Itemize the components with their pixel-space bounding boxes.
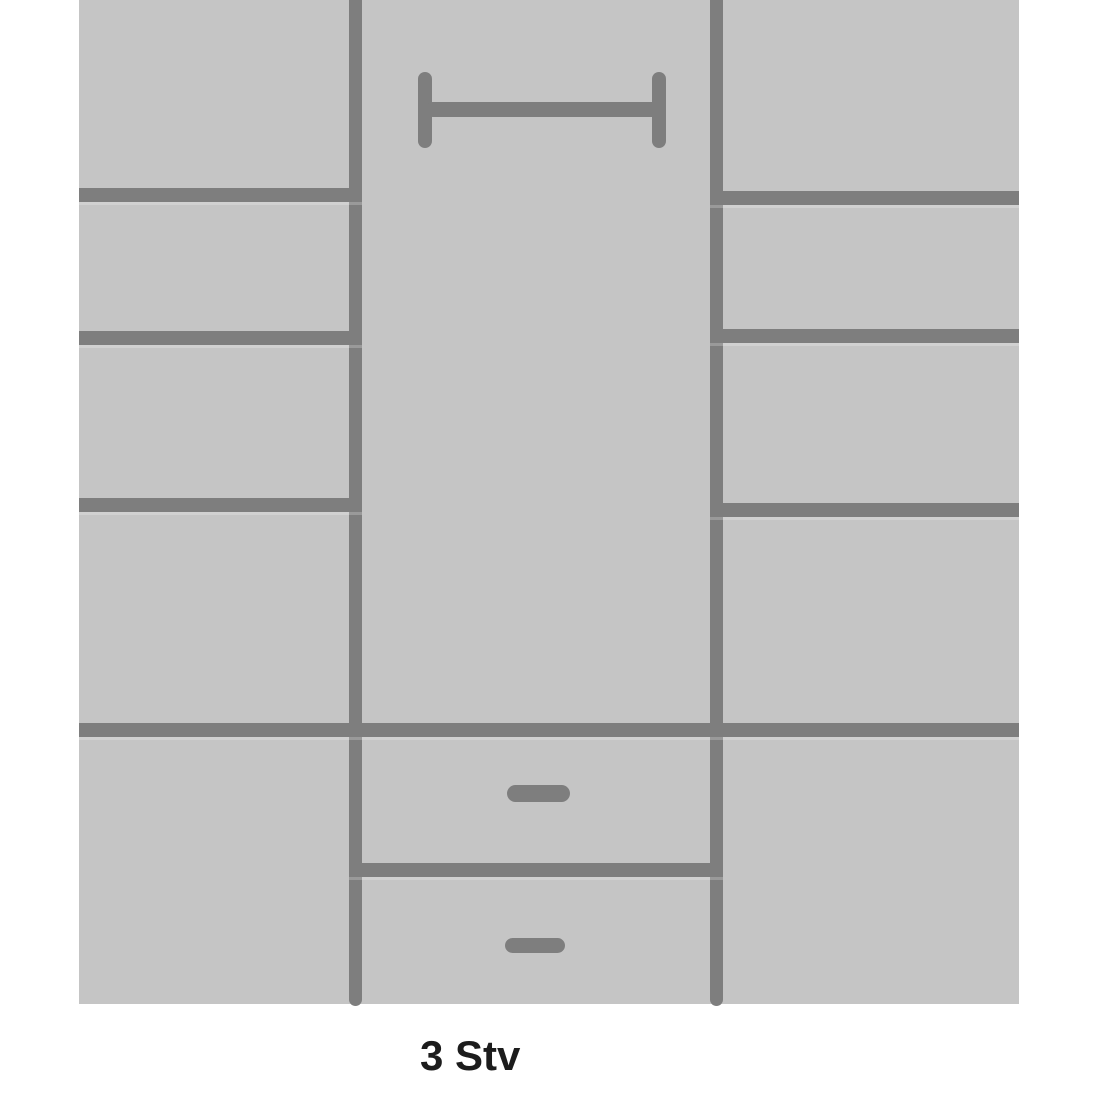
- wardrobe-body: [79, 0, 1019, 1004]
- right-shelf-line-3: [710, 503, 1019, 517]
- rail-end-right-icon: [652, 72, 666, 148]
- right-shelf-line-2: [710, 329, 1019, 343]
- drawer-divider-line: [349, 863, 723, 877]
- drawer-handle-top-icon: [507, 785, 570, 802]
- diagram-caption: 3 Stv: [420, 1032, 520, 1080]
- bottom-section-shelf-line: [79, 723, 1019, 737]
- left-shelf-line-2: [79, 331, 362, 345]
- wardrobe-diagram: 3 Stv: [0, 0, 1100, 1100]
- hanging-rail-icon: [425, 102, 661, 117]
- left-shelf-line-1: [79, 188, 362, 202]
- left-shelf-line-3: [79, 498, 362, 512]
- drawer-handle-bottom-icon: [505, 938, 565, 953]
- right-shelf-line-1: [710, 191, 1019, 205]
